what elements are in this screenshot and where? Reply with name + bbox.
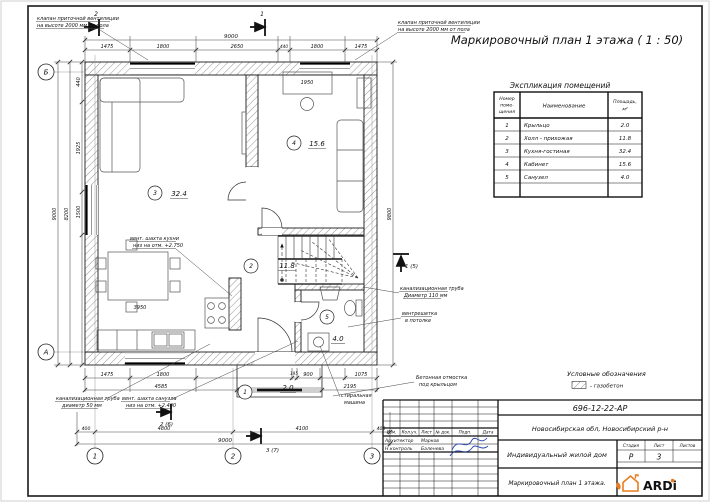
legend-item: - газобетон — [590, 384, 624, 390]
section-label: 1 — [260, 11, 264, 18]
svg-text:на высоте 2000 мм от пола: на высоте 2000 мм от пола — [37, 23, 109, 29]
stamp-col-header: Дата — [482, 430, 494, 435]
axis-label: 2 — [231, 453, 236, 461]
dim-label: 9000 — [52, 208, 58, 221]
room-area: 11.8 — [279, 262, 295, 270]
sheet-svg: Б А 1 2 3 2 1 2 (6) 3 (7) 1 (5) — [0, 0, 710, 502]
project-name: Индивидуальный жилой дом — [507, 451, 607, 459]
svg-text:4.0: 4.0 — [621, 175, 630, 181]
drawing-name: Маркировочный план 1 этажа. — [508, 480, 605, 487]
stage-label: Стадия — [623, 443, 640, 448]
svg-text:вентрешетка: вентрешетка — [402, 311, 437, 317]
col-header: м² — [622, 108, 627, 113]
col-header: щения — [499, 110, 515, 115]
dim-label: 1475 — [101, 372, 114, 378]
listov-label: Листов — [679, 443, 696, 448]
svg-text:клапан приточной вентиляции: клапан приточной вентиляции — [398, 20, 481, 26]
dim-label: 900 — [303, 372, 313, 378]
location: Новосибирская обл, Новосибирский р-н — [532, 425, 668, 433]
list-label: Лист — [653, 443, 665, 448]
axis-label: 1 — [93, 453, 97, 461]
doc-number: 696-12-22-АР — [573, 404, 628, 413]
svg-text:Кабинет: Кабинет — [524, 162, 549, 168]
list-value: 3 — [657, 453, 662, 462]
axis-label: 3 — [370, 453, 374, 461]
col-header: Наименование — [543, 104, 586, 110]
stamp-col-header: Изм. — [387, 430, 397, 435]
dim-label: 1800 — [311, 44, 324, 50]
svg-text:Бетонная отмостка: Бетонная отмостка — [416, 375, 467, 381]
svg-text:32.4: 32.4 — [619, 149, 632, 155]
dim-label: 1500 — [76, 206, 82, 219]
role-label: Архитектор — [384, 438, 414, 444]
svg-text:Кухня-гостиная: Кухня-гостиная — [524, 149, 570, 155]
dim-label: 400 — [82, 426, 91, 432]
axis-label: Б — [44, 69, 49, 77]
section-label: 1 (5) — [405, 264, 418, 270]
table-title: Экспликация помещений — [509, 81, 611, 90]
dim-label: 400 — [377, 426, 386, 432]
room-area: 2.0 — [282, 384, 294, 392]
role-name: Баленева — [421, 446, 444, 452]
dim-label: 2650 — [231, 44, 244, 50]
svg-text:5: 5 — [505, 175, 509, 181]
svg-text:машина: машина — [344, 400, 365, 406]
stamp-col-header: Кол.уч. — [402, 430, 418, 435]
svg-text:2: 2 — [505, 136, 509, 142]
dim-label: 1475 — [101, 44, 114, 50]
dim-label: 8200 — [64, 208, 70, 221]
dim-label: 1800 — [157, 44, 170, 50]
dim-label: 2195 — [344, 384, 357, 390]
svg-text:вент. шахта санузла: вент. шахта санузла — [122, 396, 177, 402]
stage-value: Р — [629, 453, 634, 462]
dim-label: 4800 — [158, 426, 171, 432]
gazobeton-swatch — [572, 382, 586, 389]
col-header: Номер — [499, 96, 515, 102]
svg-text:низ на отм. +2.750: низ на отм. +2.750 — [133, 243, 183, 249]
svg-text:1: 1 — [505, 123, 509, 129]
dim-label: 1075 — [355, 372, 368, 378]
legend-title: Условные обозначения — [567, 370, 646, 378]
svg-text:15.6: 15.6 — [619, 162, 632, 168]
svg-text:в потолке: в потолке — [405, 318, 431, 324]
dim-label: 1475 — [355, 44, 368, 50]
dim-label: 4585 — [155, 384, 168, 390]
room-area: 32.4 — [171, 190, 187, 198]
room-number: 5 — [325, 314, 329, 321]
inner-wall — [246, 75, 258, 167]
room-number: 1 — [243, 389, 247, 396]
room-number: 3 — [153, 190, 157, 197]
dim-label: 195 — [290, 371, 298, 376]
stamp-col-header: Подп. — [459, 430, 472, 435]
svg-text:Диаметр 110 мм: Диаметр 110 мм — [403, 293, 448, 299]
svg-text:низ на отм. +2.400: низ на отм. +2.400 — [126, 403, 176, 409]
stamp-col-header: № док. — [434, 430, 450, 435]
svg-text:3: 3 — [505, 149, 509, 155]
svg-text:Холл - прихожая: Холл - прихожая — [523, 136, 573, 142]
col-header: поме- — [500, 104, 514, 109]
svg-text:2.0: 2.0 — [621, 123, 630, 129]
svg-text:11.8: 11.8 — [619, 136, 632, 142]
col-header: Площадь, — [613, 99, 637, 105]
kitchen-vent-shaft — [229, 278, 241, 330]
entrance-opening — [255, 352, 295, 365]
svg-text:Крыльцо: Крыльцо — [524, 123, 550, 129]
svg-text:клапан приточной вентиляции: клапан приточной вентиляции — [37, 16, 120, 22]
role-name: Марков — [421, 438, 439, 444]
svg-text:вент. шахта кухни: вент. шахта кухни — [130, 236, 180, 242]
axis-label: А — [43, 349, 49, 357]
dim-label: 3950 — [134, 305, 147, 311]
room-number: 2 — [249, 263, 253, 270]
dim-label: 9000 — [224, 34, 238, 40]
logo-i-dot — [671, 479, 675, 483]
room-number: 4 — [292, 140, 296, 147]
svg-text:4: 4 — [505, 162, 509, 168]
dim-label: 440 — [280, 44, 288, 49]
dim-label: 1800 — [157, 372, 170, 378]
role-label: Н.контроль — [385, 446, 413, 452]
dim-label: 9000 — [218, 438, 232, 444]
dim-label: 1950 — [301, 80, 314, 86]
room-area: 4.0 — [332, 335, 344, 343]
dim-label: 4100 — [296, 426, 309, 432]
page-title: Маркировочный план 1 этажа ( 1 : 50) — [451, 33, 683, 47]
section-label: 3 (7) — [266, 448, 279, 454]
stamp-col-header: Лист — [420, 430, 432, 435]
dim-label: 440 — [76, 77, 82, 87]
svg-text:под крыльцом: под крыльцом — [419, 382, 457, 388]
svg-text:канализационная труба: канализационная труба — [400, 286, 464, 292]
dim-label: 1925 — [76, 142, 82, 155]
room-area: 15.6 — [309, 140, 325, 148]
svg-text:диаметр 50 мм: диаметр 50 мм — [61, 403, 102, 409]
dim-label: 9800 — [387, 208, 393, 221]
drawing-sheet: Б А 1 2 3 2 1 2 (6) 3 (7) 1 (5) — [0, 0, 710, 502]
svg-text:Санузел: Санузел — [524, 175, 548, 181]
